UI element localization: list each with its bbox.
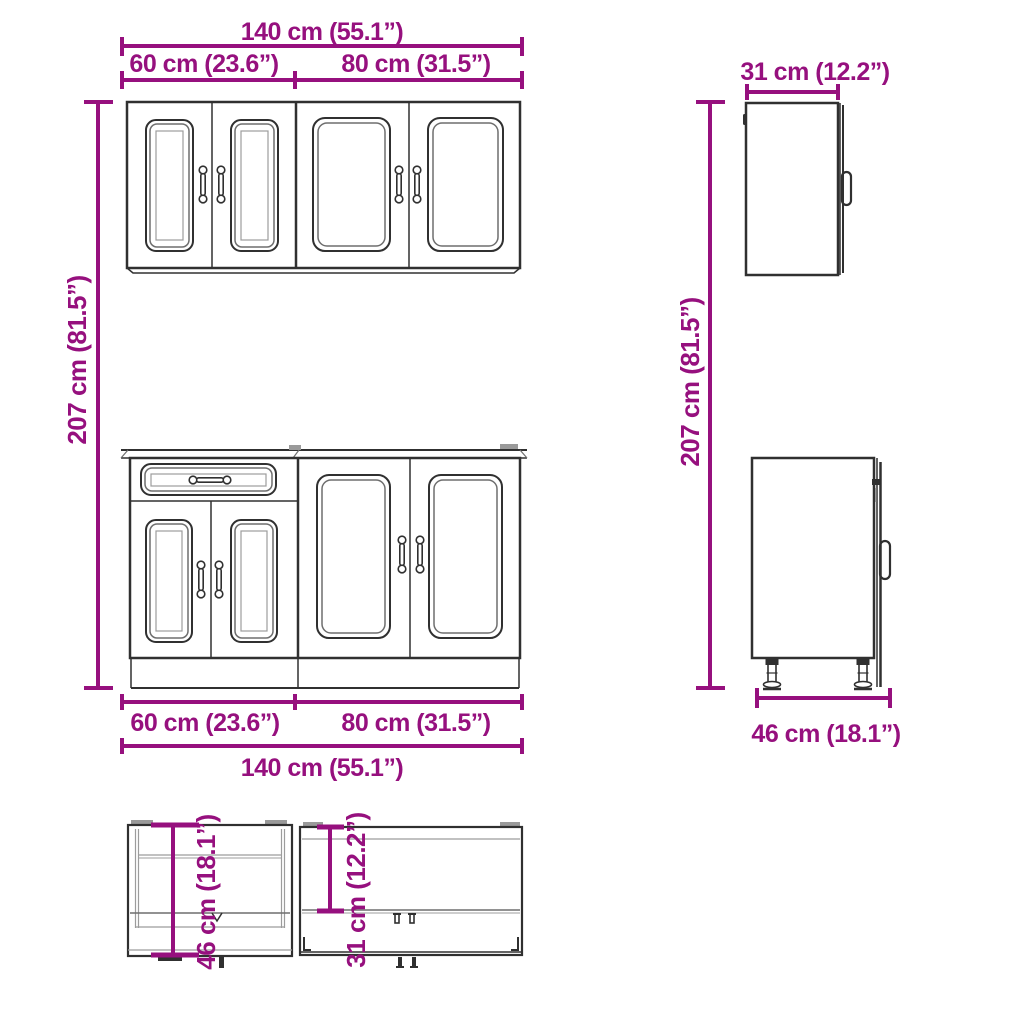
dim-label-wall-depth: 31 cm (12.2”) [740, 58, 889, 86]
drawer-handle [189, 476, 231, 484]
wall-depth-top-dimension: 31 cm (12.2”) [317, 812, 371, 967]
dim-label-base-depth-top: 46 cm (18.1”) [191, 814, 221, 969]
wall-side-outline [746, 103, 838, 275]
wall-door-handle [199, 166, 207, 203]
wall-top-outline [300, 827, 522, 955]
base-cabinet-side-view [752, 458, 890, 689]
base-cabinets-front-view [121, 444, 527, 688]
dim-label-wall-depth-top: 31 cm (12.2”) [341, 812, 371, 967]
cabinet-foot [854, 659, 872, 689]
dim-label-base-right-width: 80 cm (31.5”) [341, 709, 490, 737]
base-front-dimensions: 60 cm (23.6”) 80 cm (31.5”) 140 cm (55.1… [122, 694, 522, 782]
wall-top-view [300, 822, 522, 968]
base-door-handle [398, 536, 406, 573]
dim-label-height-left: 207 cm (81.5”) [62, 275, 92, 444]
dim-label-base-left-width: 60 cm (23.6”) [130, 709, 279, 737]
height-dimension-right: 207 cm (81.5”) [675, 102, 725, 688]
dim-label-wall-total-width: 140 cm (55.1”) [241, 18, 404, 46]
diagram-svg: 140 cm (55.1”) 60 cm (23.6”) 80 cm (31.5… [0, 0, 1024, 1024]
cabinet-foot [763, 659, 781, 689]
base-door-handle [416, 536, 424, 573]
wall-depth-dimension: 31 cm (12.2”) [740, 58, 889, 100]
base-door-handle [215, 561, 223, 598]
wall-door-handle [217, 166, 225, 203]
base-depth-dimension: 46 cm (18.1”) [751, 688, 900, 748]
wall-cabinets-front-view [127, 102, 520, 273]
height-dimension-left: 207 cm (81.5”) [62, 102, 113, 688]
wall-door-handle [413, 166, 421, 203]
base-door-handle [197, 561, 205, 598]
wall-front-dimensions: 140 cm (55.1”) 60 cm (23.6”) 80 cm (31.5… [122, 18, 522, 89]
wall-cabinet-side-view [743, 103, 851, 275]
dim-label-base-total-width: 140 cm (55.1”) [241, 754, 404, 782]
dim-label-base-depth: 46 cm (18.1”) [751, 720, 900, 748]
cabinet-dimension-diagram: 140 cm (55.1”) 60 cm (23.6”) 80 cm (31.5… [0, 0, 1024, 1024]
base-depth-top-dimension: 46 cm (18.1”) [151, 814, 221, 969]
dim-label-height-right: 207 cm (81.5”) [675, 297, 705, 466]
wall-door-handle [395, 166, 403, 203]
base-side-outline [752, 458, 874, 658]
dim-label-wall-right-width: 80 cm (31.5”) [341, 50, 490, 78]
wall-front-outline [127, 102, 520, 268]
hinge-pin [393, 914, 416, 923]
dim-label-wall-left-width: 60 cm (23.6”) [129, 50, 278, 78]
